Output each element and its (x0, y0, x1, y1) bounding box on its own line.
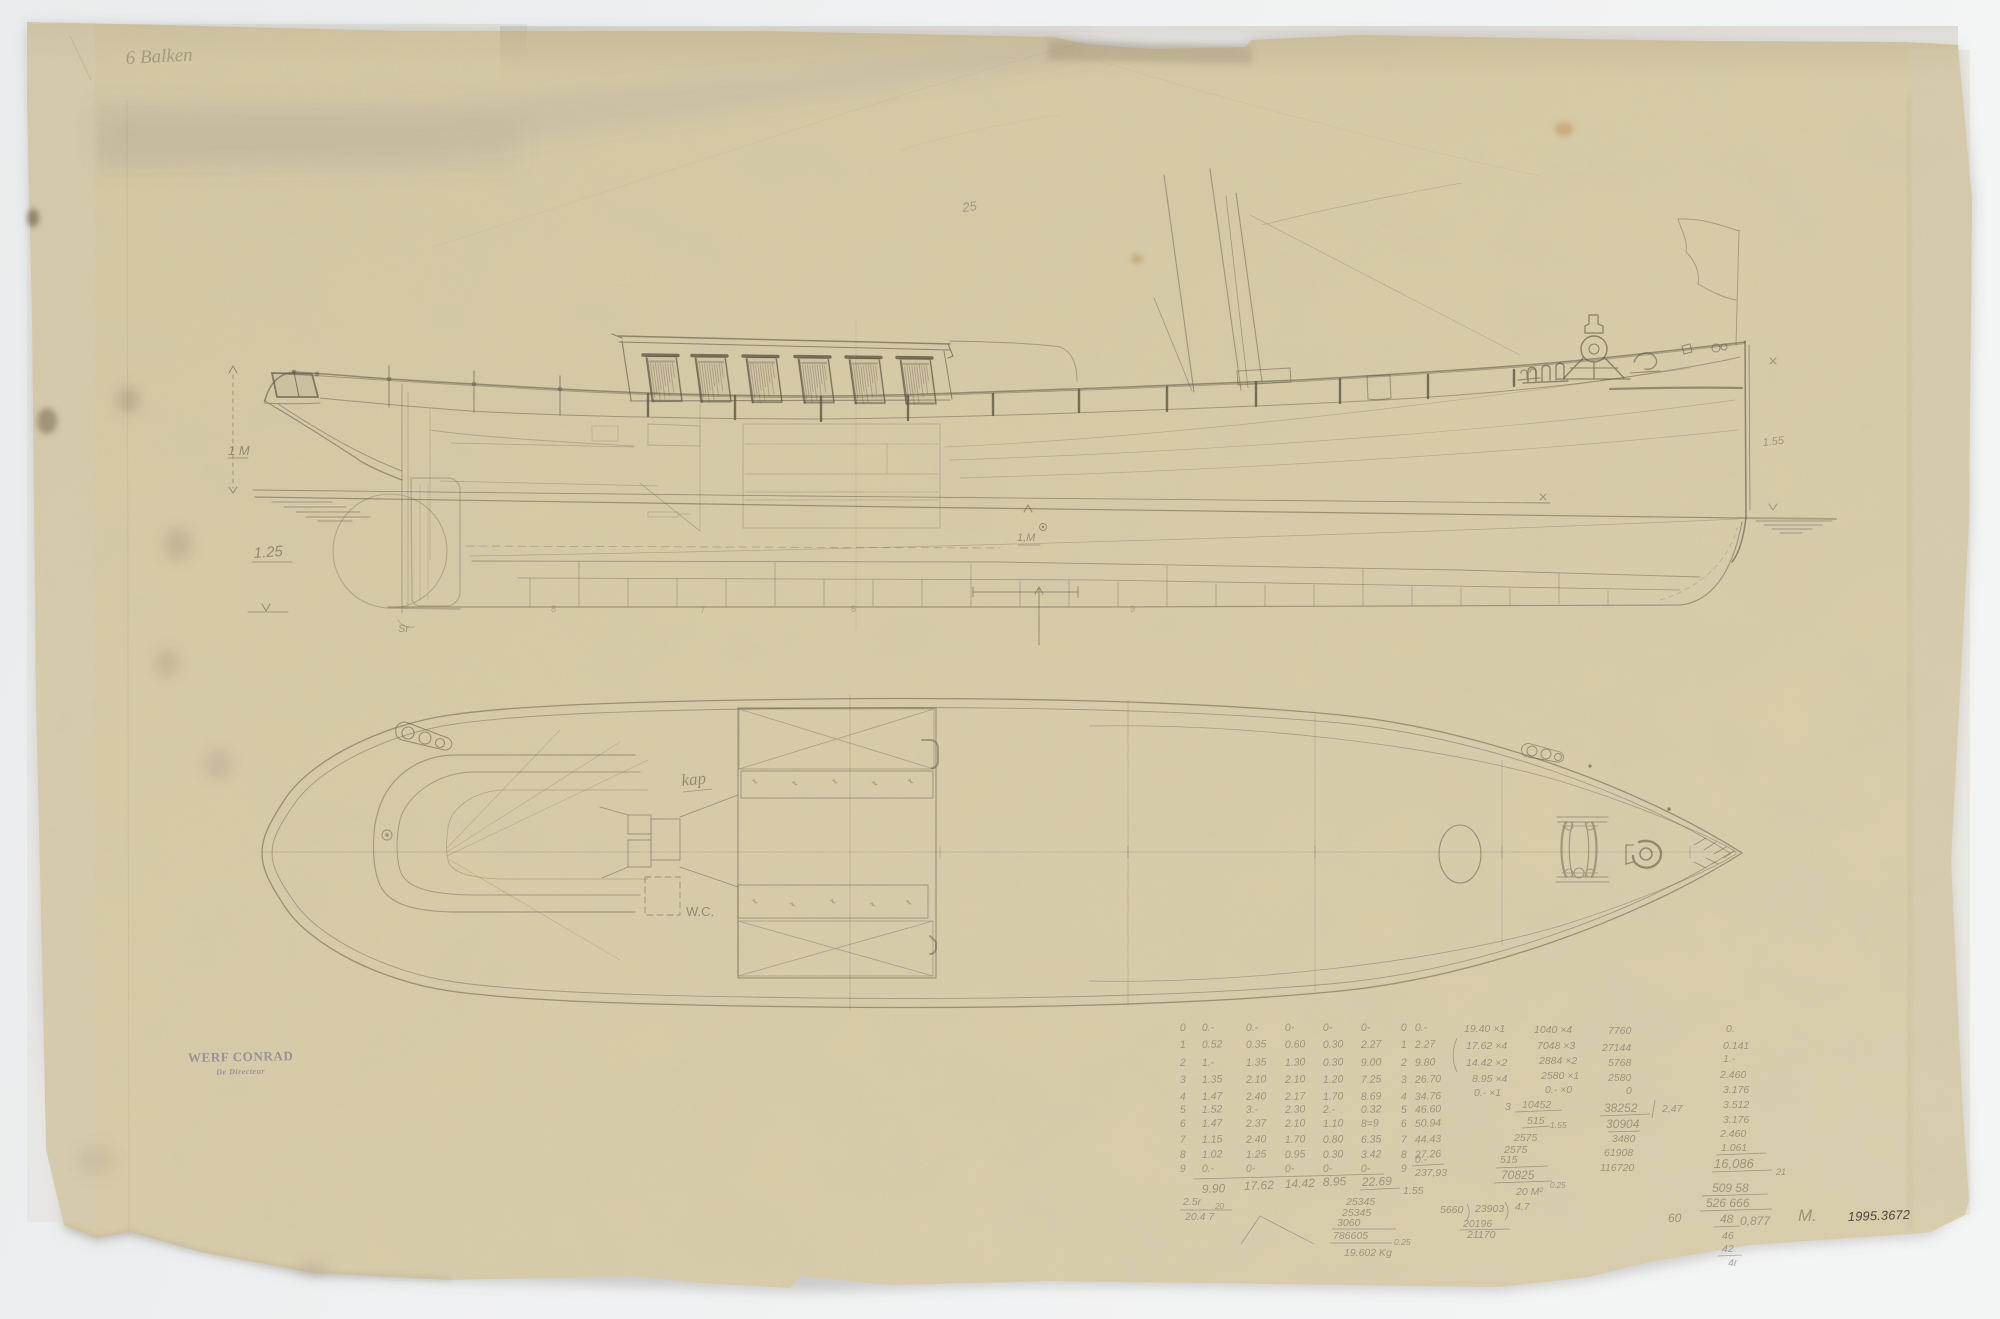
svg-text:1.02: 1.02 (1202, 1148, 1223, 1161)
svg-text:0.-: 0.- (1202, 1163, 1215, 1175)
svg-text:70825: 70825 (1501, 1168, 1535, 1182)
svg-text:1.20: 1.20 (1323, 1073, 1344, 1086)
svg-text:0.-: 0.- (1415, 1022, 1428, 1034)
svg-text:38252: 38252 (1604, 1101, 1638, 1115)
svg-text:0.60: 0.60 (1285, 1038, 1306, 1051)
svg-text:8: 8 (1401, 1149, 1407, 1161)
svg-text:0.-: 0.- (1246, 1022, 1259, 1034)
svg-text:2.10: 2.10 (1284, 1073, 1306, 1086)
svg-text:515: 515 (1527, 1115, 1545, 1127)
svg-text:50.94: 50.94 (1415, 1117, 1442, 1130)
svg-text:1.10: 1.10 (1323, 1117, 1344, 1130)
svg-text:1.55: 1.55 (1762, 435, 1785, 449)
svg-text:786605: 786605 (1333, 1230, 1368, 1242)
svg-text:5660: 5660 (1440, 1204, 1464, 1216)
svg-text:1.15: 1.15 (1202, 1133, 1223, 1146)
svg-text:61908: 61908 (1604, 1147, 1633, 1159)
svg-text:0,877: 0,877 (1740, 1214, 1771, 1228)
svg-text:6: 6 (1401, 1118, 1407, 1130)
svg-text:2580: 2580 (1607, 1072, 1632, 1084)
svg-text:0.: 0. (1726, 1023, 1735, 1035)
svg-text:2.30: 2.30 (1284, 1103, 1306, 1116)
svg-text:1.70: 1.70 (1323, 1090, 1344, 1103)
svg-text:2.5r: 2.5r (1182, 1196, 1202, 1208)
svg-text:30904: 30904 (1606, 1117, 1640, 1131)
svg-text:2: 2 (1400, 1057, 1407, 1069)
svg-text:0: 0 (1401, 1022, 1407, 1034)
svg-text:8.95: 8.95 (1323, 1174, 1347, 1189)
svg-text:7760: 7760 (1608, 1025, 1632, 1037)
svg-text:0.25: 0.25 (1394, 1237, 1411, 1247)
svg-text:237,93: 237,93 (1414, 1167, 1447, 1179)
svg-text:1: 1 (1180, 1039, 1186, 1051)
svg-text:34.76: 34.76 (1415, 1090, 1442, 1103)
svg-text:22.69: 22.69 (1361, 1174, 1393, 1189)
svg-text:0.95: 0.95 (1285, 1148, 1306, 1161)
svg-text:M.: M. (1798, 1206, 1817, 1225)
svg-text:0.- ×0: 0.- ×0 (1545, 1084, 1572, 1096)
svg-text:1,M: 1,M (1017, 532, 1036, 544)
svg-text:9.90: 9.90 (1202, 1181, 1226, 1196)
svg-text:20 M²: 20 M² (1515, 1186, 1543, 1198)
svg-text:2.27: 2.27 (1414, 1038, 1437, 1051)
svg-text:0.30: 0.30 (1323, 1038, 1344, 1051)
svg-text:3.42: 3.42 (1361, 1148, 1382, 1161)
svg-text:9.80: 9.80 (1415, 1056, 1436, 1069)
svg-text:2.40: 2.40 (1245, 1133, 1267, 1146)
svg-text:8: 8 (1180, 1149, 1186, 1161)
svg-text:1.-: 1.- (1723, 1053, 1736, 1065)
svg-text:1995.3672: 1995.3672 (1848, 1207, 1911, 1224)
svg-text:0.35: 0.35 (1246, 1038, 1267, 1051)
svg-text:2.460: 2.460 (1719, 1128, 1746, 1140)
svg-text:2: 2 (1179, 1057, 1186, 1069)
svg-text:4.7: 4.7 (1515, 1201, 1531, 1213)
svg-text:526 666: 526 666 (1706, 1196, 1750, 1210)
svg-text:Sr: Sr (398, 623, 410, 635)
svg-text:0.-: 0.- (1415, 1154, 1428, 1166)
svg-text:8.95 ×4: 8.95 ×4 (1472, 1073, 1507, 1085)
svg-text:8.69: 8.69 (1361, 1090, 1382, 1103)
svg-text:2.10: 2.10 (1245, 1073, 1267, 1086)
svg-text:2884 ×2: 2884 ×2 (1538, 1055, 1577, 1067)
svg-text:8=9: 8=9 (1361, 1117, 1379, 1130)
svg-text:0: 0 (1626, 1085, 1632, 1097)
svg-text:1.55: 1.55 (1403, 1185, 1424, 1197)
svg-text:4: 4 (1401, 1091, 1407, 1103)
svg-text:0.141: 0.141 (1723, 1040, 1749, 1052)
svg-text:1 M: 1 M (228, 443, 250, 458)
svg-text:515: 515 (1500, 1154, 1518, 1166)
svg-text:48: 48 (1720, 1212, 1734, 1226)
svg-text:14.42 ×2: 14.42 ×2 (1466, 1057, 1507, 1069)
svg-text:6.35: 6.35 (1361, 1133, 1382, 1146)
svg-text:3.176: 3.176 (1723, 1114, 1749, 1126)
svg-text:17.62 ×4: 17.62 ×4 (1466, 1040, 1507, 1052)
svg-text:10452: 10452 (1522, 1099, 1551, 1111)
svg-text:0.25: 0.25 (1550, 1181, 1566, 1190)
svg-text:6: 6 (851, 604, 856, 614)
svg-text:0-: 0- (1285, 1163, 1295, 1175)
svg-text:0: 0 (1180, 1022, 1186, 1034)
svg-text:5768: 5768 (1608, 1057, 1632, 1069)
svg-text:21: 21 (1775, 1167, 1786, 1177)
svg-text:2.37: 2.37 (1245, 1117, 1268, 1130)
svg-text:9: 9 (1180, 1163, 1186, 1175)
svg-text:0.-: 0.- (1202, 1022, 1215, 1034)
svg-text:0-: 0- (1361, 1022, 1371, 1034)
svg-text:3.-: 3.- (1246, 1104, 1259, 1116)
svg-text:1.47: 1.47 (1202, 1090, 1224, 1103)
svg-text:WERF CONRAD: WERF CONRAD (188, 1048, 294, 1065)
svg-text:44.43: 44.43 (1415, 1133, 1442, 1146)
svg-text:0.52: 0.52 (1202, 1038, 1223, 1051)
svg-text:9: 9 (1130, 604, 1135, 614)
svg-text:46.60: 46.60 (1415, 1103, 1442, 1116)
svg-text:kap: kap (680, 769, 706, 790)
svg-text:De Directeur: De Directeur (215, 1067, 265, 1077)
svg-text:1.70: 1.70 (1285, 1133, 1306, 1146)
svg-text:1.52: 1.52 (1202, 1103, 1223, 1116)
svg-text:2,47: 2,47 (1661, 1103, 1684, 1115)
svg-text:2575: 2575 (1513, 1132, 1538, 1144)
svg-text:16,086: 16,086 (1714, 1156, 1755, 1171)
svg-text:1: 1 (1401, 1039, 1407, 1051)
svg-text:1.25: 1.25 (1246, 1148, 1267, 1161)
svg-text:0-: 0- (1246, 1163, 1256, 1175)
svg-text:1.30: 1.30 (1285, 1056, 1306, 1069)
svg-text:2.17: 2.17 (1284, 1090, 1307, 1103)
svg-text:20.4 7: 20.4 7 (1184, 1211, 1215, 1223)
svg-text:6: 6 (1180, 1118, 1186, 1130)
svg-text:3: 3 (1505, 1101, 1511, 1113)
svg-text:7.25: 7.25 (1361, 1073, 1382, 1086)
svg-text:2.40: 2.40 (1245, 1090, 1267, 1103)
svg-text:27144: 27144 (1601, 1042, 1631, 1054)
svg-text:3: 3 (1180, 1074, 1186, 1086)
svg-text:0-: 0- (1323, 1022, 1333, 1034)
svg-text:2.27: 2.27 (1360, 1038, 1383, 1051)
svg-text:1.061: 1.061 (1721, 1142, 1747, 1154)
svg-text:0.32: 0.32 (1361, 1103, 1382, 1116)
svg-text:17.62: 17.62 (1244, 1178, 1275, 1193)
svg-text:116720: 116720 (1600, 1162, 1634, 1174)
svg-text:9: 9 (1401, 1163, 1407, 1175)
svg-text:46: 46 (1722, 1230, 1734, 1242)
svg-text:0-: 0- (1361, 1163, 1371, 1175)
svg-text:3.512: 3.512 (1723, 1099, 1749, 1111)
svg-text:0.30: 0.30 (1323, 1148, 1344, 1161)
svg-text:2.10: 2.10 (1284, 1117, 1306, 1130)
svg-text:26.70: 26.70 (1414, 1073, 1442, 1086)
svg-text:0.- ×1: 0.- ×1 (1474, 1087, 1501, 1099)
svg-text:1.47: 1.47 (1202, 1117, 1224, 1130)
svg-text:2.460: 2.460 (1719, 1069, 1746, 1081)
svg-text:19.602 Kg: 19.602 Kg (1344, 1247, 1392, 1259)
svg-text:5: 5 (1401, 1104, 1407, 1116)
svg-text:0.80: 0.80 (1323, 1133, 1344, 1146)
svg-text:0-: 0- (1323, 1163, 1333, 1175)
svg-text:3060: 3060 (1337, 1217, 1361, 1229)
svg-text:60: 60 (1668, 1211, 1682, 1225)
svg-text:509 58: 509 58 (1712, 1181, 1749, 1195)
svg-text:19.40 ×1: 19.40 ×1 (1464, 1023, 1505, 1035)
svg-text:1.35: 1.35 (1202, 1073, 1223, 1086)
svg-text:0-: 0- (1285, 1022, 1295, 1034)
svg-text:21170: 21170 (1466, 1229, 1496, 1241)
svg-text:2.-: 2.- (1322, 1104, 1336, 1116)
svg-text:8: 8 (551, 604, 556, 614)
svg-text:1.-: 1.- (1202, 1057, 1215, 1069)
svg-text:9.00: 9.00 (1361, 1056, 1382, 1069)
svg-text:2580 ×1: 2580 ×1 (1540, 1070, 1579, 1082)
svg-text:1040 ×4: 1040 ×4 (1534, 1024, 1572, 1036)
svg-text:42: 42 (1722, 1243, 1734, 1255)
svg-text:5: 5 (1180, 1104, 1186, 1116)
svg-text:1.25: 1.25 (253, 543, 284, 562)
svg-text:7048 ×3: 7048 ×3 (1537, 1040, 1575, 1052)
svg-text:1.55: 1.55 (1550, 1120, 1567, 1130)
svg-text:3: 3 (1401, 1074, 1407, 1086)
svg-text:25: 25 (960, 198, 978, 215)
svg-text:23903: 23903 (1474, 1203, 1504, 1215)
svg-text:4r: 4r (1728, 1257, 1738, 1269)
svg-text:3480: 3480 (1612, 1133, 1636, 1145)
svg-text:14.42: 14.42 (1285, 1176, 1316, 1191)
svg-text:4: 4 (1180, 1091, 1186, 1103)
svg-text:W.C.: W.C. (686, 904, 714, 919)
svg-text:3.176: 3.176 (1723, 1084, 1749, 1096)
svg-text:1.35: 1.35 (1246, 1056, 1267, 1069)
svg-text:0.30: 0.30 (1323, 1056, 1344, 1069)
svg-text:6 Balken: 6 Balken (125, 45, 193, 69)
svg-text:7: 7 (700, 605, 705, 615)
